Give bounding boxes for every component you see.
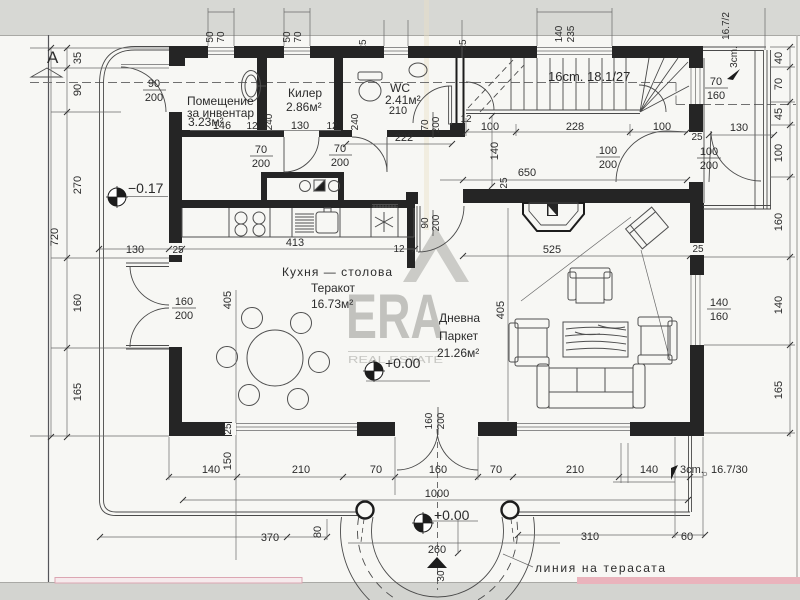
svg-text:+0.00: +0.00 xyxy=(385,355,421,371)
svg-text:Килер: Килер xyxy=(288,86,322,100)
svg-text:90: 90 xyxy=(420,217,431,229)
svg-text:165: 165 xyxy=(72,383,84,401)
svg-text:16.7/2: 16.7/2 xyxy=(721,12,732,40)
svg-text:720: 720 xyxy=(49,228,61,246)
svg-text:−0.17: −0.17 xyxy=(128,180,164,196)
svg-text:210: 210 xyxy=(566,464,584,476)
svg-text:Паркет: Паркет xyxy=(439,329,479,343)
svg-text:Кухня — столова: Кухня — столова xyxy=(282,265,392,279)
svg-text:3cm.: 3cm. xyxy=(680,464,704,476)
svg-text:40: 40 xyxy=(773,52,785,64)
svg-text:50: 50 xyxy=(282,31,293,43)
svg-text:310: 310 xyxy=(581,531,599,543)
svg-text:16.73м²: 16.73м² xyxy=(311,297,353,311)
svg-text:70: 70 xyxy=(773,78,785,90)
svg-text:1000: 1000 xyxy=(425,488,449,500)
svg-text:25: 25 xyxy=(458,39,469,51)
svg-text:70: 70 xyxy=(710,76,722,88)
svg-text:100: 100 xyxy=(599,145,617,157)
svg-text:70: 70 xyxy=(420,119,431,131)
svg-text:160: 160 xyxy=(710,311,728,323)
svg-text:100: 100 xyxy=(700,146,718,158)
svg-text:130: 130 xyxy=(730,122,748,134)
svg-text:16cm. 18.1/27: 16cm. 18.1/27 xyxy=(548,69,630,84)
svg-text:160: 160 xyxy=(707,90,725,102)
svg-text:140: 140 xyxy=(773,296,785,314)
svg-text:160: 160 xyxy=(424,412,435,429)
svg-text:70: 70 xyxy=(490,464,502,476)
svg-text:25: 25 xyxy=(223,423,234,435)
svg-text:130: 130 xyxy=(126,244,144,256)
svg-text:140: 140 xyxy=(489,142,501,160)
svg-text:12: 12 xyxy=(460,114,472,125)
svg-text:30: 30 xyxy=(436,570,447,582)
svg-text:12: 12 xyxy=(393,244,405,255)
svg-text:222: 222 xyxy=(395,132,413,144)
svg-text:200: 200 xyxy=(599,159,617,171)
svg-text:160: 160 xyxy=(429,464,447,476)
svg-text:100: 100 xyxy=(481,121,499,133)
svg-text:70: 70 xyxy=(255,144,267,156)
svg-text:70: 70 xyxy=(370,464,382,476)
svg-text:200: 200 xyxy=(331,157,349,169)
svg-text:Дневна: Дневна xyxy=(439,311,480,325)
svg-text:3cm.: 3cm. xyxy=(729,46,740,68)
svg-text:50: 50 xyxy=(205,31,216,43)
svg-text:70: 70 xyxy=(216,31,227,43)
svg-text:100: 100 xyxy=(653,121,671,133)
svg-text:235: 235 xyxy=(566,25,577,42)
svg-text:16.7/30: 16.7/30 xyxy=(711,464,748,476)
svg-text:21.26м²: 21.26м² xyxy=(437,346,479,360)
svg-text:140: 140 xyxy=(202,464,220,476)
svg-text:90: 90 xyxy=(72,84,84,96)
svg-text:650: 650 xyxy=(518,167,536,179)
svg-text:140: 140 xyxy=(710,297,728,309)
svg-text:80: 80 xyxy=(312,526,324,538)
svg-text:200: 200 xyxy=(175,310,193,322)
svg-text:25: 25 xyxy=(692,244,704,255)
svg-text:25: 25 xyxy=(358,39,369,51)
svg-text:413: 413 xyxy=(286,237,304,249)
svg-text:525: 525 xyxy=(543,244,561,256)
svg-text:+0.00: +0.00 xyxy=(434,507,470,523)
svg-text:240: 240 xyxy=(264,113,275,130)
svg-text:160: 160 xyxy=(175,296,193,308)
svg-text:45: 45 xyxy=(773,108,785,120)
svg-text:Теракот: Теракот xyxy=(311,281,355,295)
svg-text:140: 140 xyxy=(640,464,658,476)
svg-text:200: 200 xyxy=(145,92,163,104)
svg-text:200: 200 xyxy=(252,158,270,170)
svg-text:25: 25 xyxy=(499,177,510,189)
svg-text:260: 260 xyxy=(428,544,446,556)
svg-text:линия на терасата: линия на терасата xyxy=(535,561,665,575)
svg-text:150: 150 xyxy=(222,452,234,470)
svg-text:ERA: ERA xyxy=(346,282,444,352)
svg-text:405: 405 xyxy=(222,291,234,309)
svg-text:210: 210 xyxy=(389,105,407,117)
svg-text:160: 160 xyxy=(773,213,785,231)
svg-text:165: 165 xyxy=(773,381,785,399)
svg-text:25: 25 xyxy=(172,245,184,256)
svg-text:210: 210 xyxy=(292,464,310,476)
svg-text:2.86м²: 2.86м² xyxy=(286,100,322,114)
svg-text:70: 70 xyxy=(293,31,304,43)
svg-text:90: 90 xyxy=(148,78,160,90)
svg-text:35: 35 xyxy=(72,52,84,64)
svg-text:70: 70 xyxy=(334,143,346,155)
svg-text:370: 370 xyxy=(261,532,279,544)
svg-text:25: 25 xyxy=(691,132,703,143)
svg-text:60: 60 xyxy=(681,531,693,543)
svg-text:270: 270 xyxy=(72,176,84,194)
svg-text:100: 100 xyxy=(773,144,785,162)
svg-text:140: 140 xyxy=(554,25,565,42)
svg-text:240: 240 xyxy=(350,113,361,130)
svg-text:405: 405 xyxy=(495,301,507,319)
svg-text:228: 228 xyxy=(566,121,584,133)
svg-text:160: 160 xyxy=(72,294,84,312)
svg-text:200: 200 xyxy=(700,160,718,172)
